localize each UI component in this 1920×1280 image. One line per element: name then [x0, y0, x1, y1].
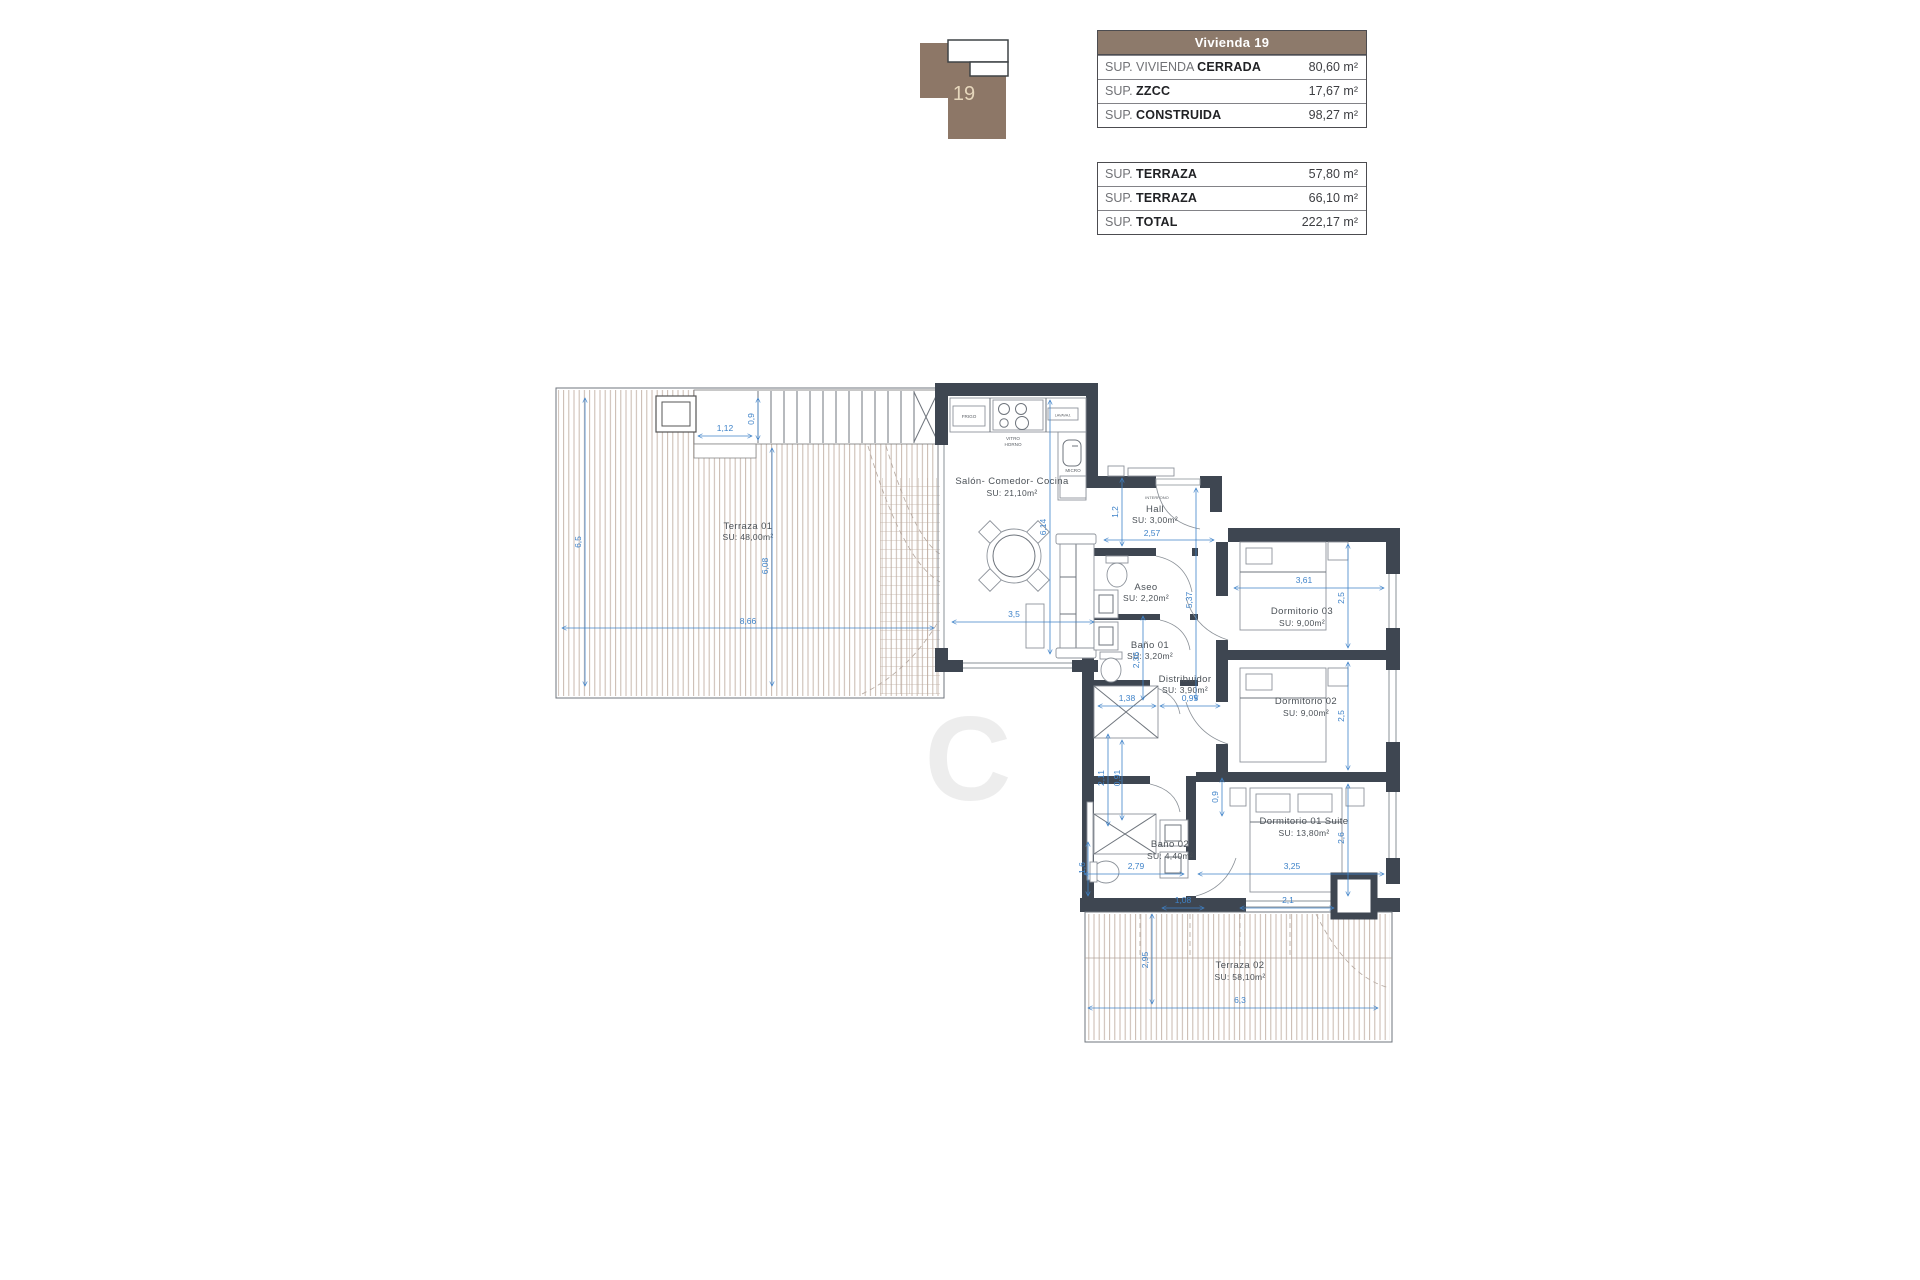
hob-label-1: VITRO [1006, 436, 1020, 441]
table-row: SUP. CONSTRUIDA 98,27 m² [1098, 103, 1366, 127]
svg-text:0,9: 0,9 [1210, 791, 1220, 803]
svg-text:0,95: 0,95 [1182, 693, 1199, 703]
room-label: Terraza 02 [1216, 960, 1265, 971]
svg-text:SU: 9,00m²: SU: 9,00m² [1283, 708, 1329, 718]
dishwasher-label: LAVAVAJ. [1055, 414, 1072, 418]
key-plan-neighbor-1 [948, 40, 1008, 62]
svg-text:Dormitorio 03: Dormitorio 03 [1271, 606, 1333, 617]
svg-text:6,08: 6,08 [760, 557, 770, 574]
svg-text:3,61: 3,61 [1296, 575, 1313, 585]
fridge-label: FRIGO [962, 414, 977, 419]
nightstand [1346, 788, 1364, 806]
nightstand [1328, 542, 1348, 560]
living-furniture [979, 521, 1096, 658]
svg-text:6,3: 6,3 [1234, 995, 1246, 1005]
svg-text:Dormitorio 02: Dormitorio 02 [1275, 696, 1337, 707]
svg-text:1,6: 1,6 [1077, 862, 1087, 874]
svg-text:Dormitorio 01 Suite: Dormitorio 01 Suite [1260, 816, 1349, 827]
trellis-grid [880, 478, 940, 694]
svg-text:2,36: 2,36 [1131, 651, 1141, 668]
table-row: SUP. TERRAZA 57,80 m² [1098, 163, 1366, 186]
svg-text:0,9: 0,9 [746, 413, 756, 425]
surface-table-main: Vivienda 19 SUP. VIVIENDA CERRADA 80,60 … [1097, 30, 1367, 128]
surface-table-header: Vivienda 19 [1098, 31, 1366, 55]
watermark-letter: C [925, 692, 1012, 826]
svg-text:Baño 02: Baño 02 [1151, 839, 1189, 850]
nightstand [1230, 788, 1246, 806]
svg-text:Distribuidor: Distribuidor [1159, 674, 1212, 685]
svg-text:2,11: 2,11 [1096, 770, 1106, 786]
svg-text:1,38: 1,38 [1119, 693, 1136, 703]
intercom-label: INTERFONO [1145, 495, 1169, 500]
room-label: Terraza 01 [724, 521, 773, 532]
room-area: SU: 48,00m² [722, 532, 773, 542]
svg-text:SU: 13,80m²: SU: 13,80m² [1278, 828, 1329, 838]
svg-text:SU: 2,20m²: SU: 2,20m² [1123, 593, 1169, 603]
table-row: SUP. ZZCC 17,67 m² [1098, 79, 1366, 103]
pillar [1334, 876, 1374, 916]
svg-text:6,5: 6,5 [573, 536, 583, 548]
washbasin [1094, 590, 1118, 618]
svg-text:2,6: 2,6 [1336, 832, 1346, 844]
floor-plan: C Te [540, 370, 1420, 1060]
micro-label: MICRO [1065, 468, 1081, 473]
nightstand [1328, 668, 1348, 686]
svg-text:SU: 21,10m²: SU: 21,10m² [986, 488, 1037, 498]
surface-table-terraces: SUP. TERRAZA 57,80 m² SUP. TERRAZA 66,10… [1097, 162, 1367, 235]
page: 19 Vivienda 19 SUP. VIVIENDA CERRADA 80,… [0, 0, 1920, 1280]
table-row: SUP. VIVIENDA CERRADA 80,60 m² [1098, 55, 1366, 79]
room-area: SU: 58,10m² [1214, 972, 1265, 982]
svg-text:6,14: 6,14 [1038, 518, 1048, 535]
svg-text:2,57: 2,57 [1144, 528, 1161, 538]
table-row: SUP. TERRAZA 66,10 m² [1098, 186, 1366, 210]
svg-text:2,1: 2,1 [1282, 895, 1294, 905]
svg-text:1,08: 1,08 [1175, 895, 1192, 905]
key-plan-unit-number: 19 [953, 83, 975, 105]
hob-label-2: HORNO [1004, 442, 1022, 447]
svg-text:SU: 9,00m²: SU: 9,00m² [1279, 618, 1325, 628]
svg-text:1,2: 1,2 [1110, 506, 1120, 518]
key-plan-neighbor-2 [970, 62, 1008, 76]
svg-text:2,95: 2,95 [1140, 951, 1150, 968]
svg-text:SU: 4,40m²: SU: 4,40m² [1147, 851, 1193, 861]
svg-text:SU: 3,00m²: SU: 3,00m² [1132, 515, 1178, 525]
svg-text:1,12: 1,12 [717, 423, 734, 433]
svg-text:2,79: 2,79 [1128, 861, 1145, 871]
svg-text:Aseo: Aseo [1134, 582, 1157, 593]
svg-text:Hall: Hall [1146, 504, 1164, 515]
table-row: SUP. TOTAL 222,17 m² [1098, 210, 1366, 234]
svg-text:2,5: 2,5 [1336, 592, 1346, 604]
tv-unit [1026, 604, 1044, 648]
toilet [1107, 563, 1127, 587]
step [694, 444, 756, 458]
svg-text:3,25: 3,25 [1284, 861, 1301, 871]
svg-text:2,5: 2,5 [1336, 710, 1346, 722]
toilet [1101, 658, 1121, 682]
key-plan-icon: 19 [895, 25, 1025, 155]
svg-text:5,37: 5,37 [1184, 591, 1194, 608]
svg-text:0,91: 0,91 [1112, 769, 1122, 786]
svg-text:Baño 01: Baño 01 [1131, 640, 1169, 651]
svg-text:3,5: 3,5 [1008, 609, 1020, 619]
sofa [1060, 540, 1094, 652]
svg-text:Salón- Comedor- Cocina: Salón- Comedor- Cocina [955, 476, 1069, 487]
washbasin [1094, 622, 1118, 650]
terrace-01: Terraza 01 SU: 48,00m² [556, 388, 944, 698]
svg-text:8,66: 8,66 [740, 616, 757, 626]
